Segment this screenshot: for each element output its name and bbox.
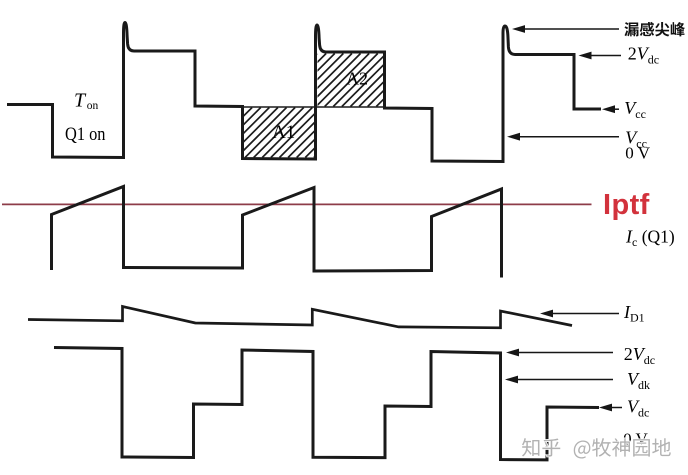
svg-text:Q1 on: Q1 on (65, 124, 106, 145)
svg-text:Vcc: Vcc (624, 98, 646, 121)
svg-text:0 V: 0 V (625, 144, 650, 163)
svg-text:ID1: ID1 (623, 302, 645, 325)
svg-text:on: on (87, 100, 99, 112)
svg-text:A2: A2 (346, 69, 368, 89)
svg-text:2Vdc: 2Vdc (624, 344, 655, 367)
svg-text:A1: A1 (272, 122, 295, 143)
svg-text:Iptf: Iptf (603, 189, 650, 221)
svg-text:2Vdc: 2Vdc (628, 44, 659, 67)
svg-text:Vdc: Vdc (627, 397, 649, 420)
svg-text:Ic (Q1): Ic (Q1) (625, 227, 675, 250)
svg-text:T: T (74, 90, 87, 112)
svg-text:Vdk: Vdk (627, 369, 650, 392)
